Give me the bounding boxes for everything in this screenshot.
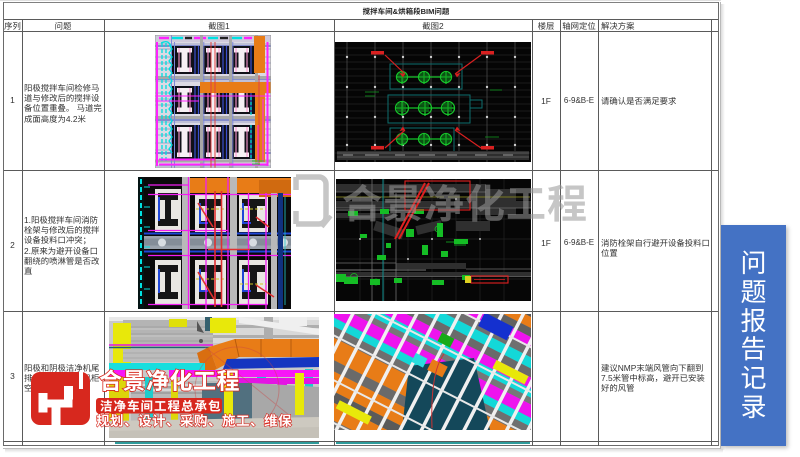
svg-text:规划、设计、采购、施工、维保: 规划、设计、采购、施工、维保 <box>96 414 292 429</box>
svg-text:合景净化工程: 合景净化工程 <box>342 183 588 227</box>
svg-text:洁净车间工程总承包: 洁净车间工程总承包 <box>100 400 222 414</box>
svg-text:合景净化工程: 合景净化工程 <box>99 368 240 394</box>
